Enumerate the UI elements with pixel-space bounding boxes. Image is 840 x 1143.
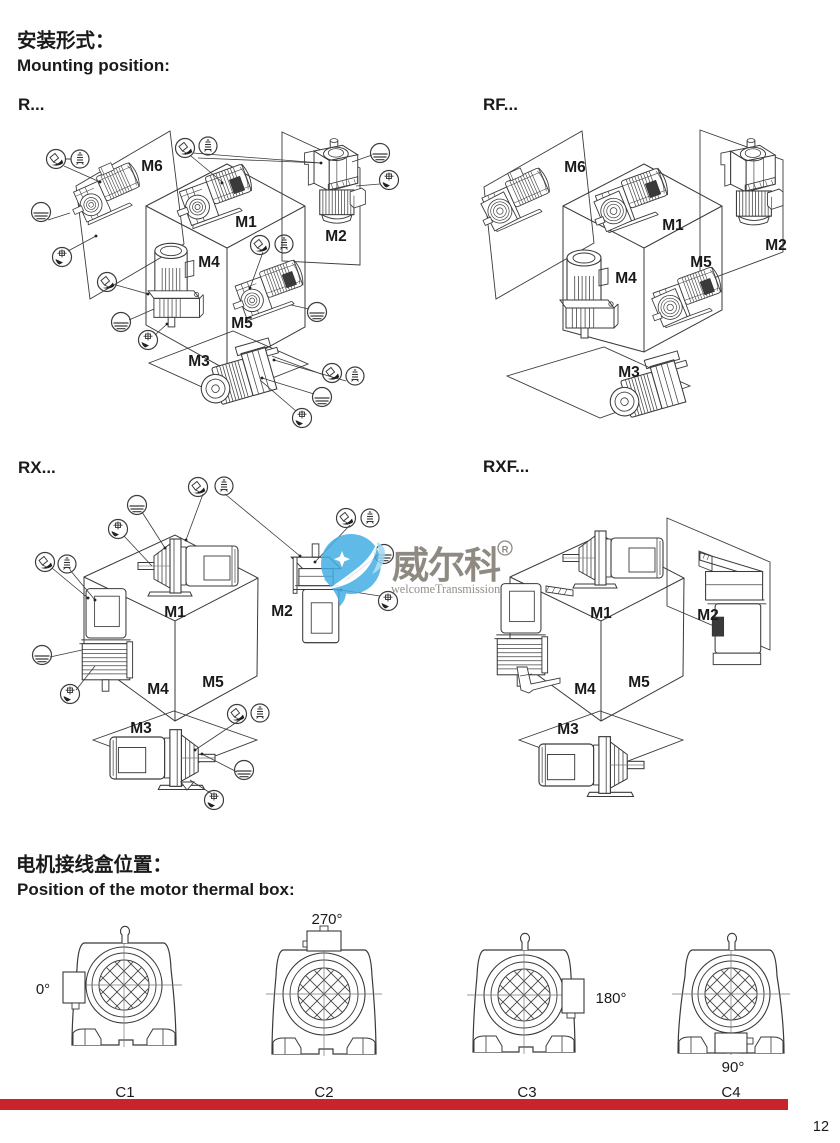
svg-text:M1: M1 (662, 217, 684, 234)
svg-text:welcomeTransmission: welcomeTransmission (391, 582, 500, 596)
svg-text:RX...: RX... (18, 458, 56, 477)
svg-text:M4: M4 (198, 254, 220, 271)
svg-text:C1: C1 (115, 1084, 134, 1101)
svg-text:安装形式：: 安装形式： (17, 29, 115, 52)
svg-text:RXF...: RXF... (483, 457, 529, 476)
svg-text:270°: 270° (311, 911, 342, 928)
svg-text:M3: M3 (557, 721, 579, 738)
svg-text:M5: M5 (202, 674, 224, 691)
svg-text:C4: C4 (721, 1084, 740, 1101)
svg-text:M3: M3 (188, 353, 210, 370)
svg-text:M2: M2 (325, 228, 347, 245)
svg-text:M2: M2 (697, 607, 719, 624)
svg-text:威尔科: 威尔科 (392, 545, 501, 586)
svg-text:180°: 180° (595, 990, 626, 1007)
svg-text:R: R (502, 545, 509, 556)
svg-text:0°: 0° (36, 981, 50, 998)
svg-text:M5: M5 (690, 254, 712, 271)
svg-text:M4: M4 (147, 681, 169, 698)
svg-text:电机接线盒位置：: 电机接线盒位置： (16, 853, 172, 876)
svg-text:M6: M6 (141, 158, 163, 175)
svg-text:C3: C3 (517, 1084, 536, 1101)
svg-text:M5: M5 (628, 674, 650, 691)
svg-text:12: 12 (813, 1119, 829, 1135)
svg-text:M4: M4 (615, 270, 637, 287)
svg-text:M6: M6 (564, 159, 586, 176)
svg-text:M5: M5 (231, 315, 253, 332)
svg-text:M4: M4 (574, 681, 596, 698)
svg-text:M2: M2 (271, 603, 293, 620)
svg-text:90°: 90° (722, 1059, 745, 1076)
svg-text:M1: M1 (590, 605, 612, 622)
svg-text:M1: M1 (164, 604, 186, 621)
svg-text:M3: M3 (618, 364, 640, 381)
svg-text:C2: C2 (314, 1084, 333, 1101)
svg-text:RF...: RF... (483, 95, 518, 114)
svg-text:R...: R... (18, 95, 44, 114)
svg-text:Position of the motor thermal: Position of the motor thermal box: (17, 880, 295, 899)
svg-text:M1: M1 (235, 214, 257, 231)
svg-text:Mounting position:: Mounting position: (17, 56, 170, 75)
svg-text:M3: M3 (130, 720, 152, 737)
svg-text:M2: M2 (765, 237, 787, 254)
